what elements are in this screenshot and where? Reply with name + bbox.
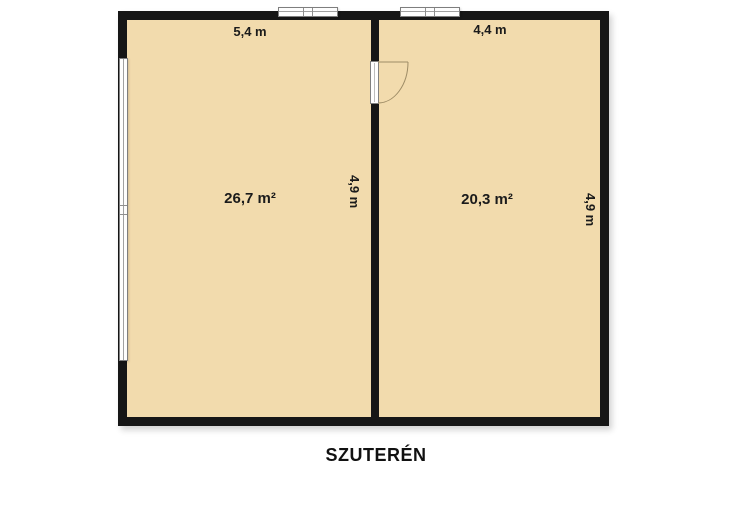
plan-title: SZUTERÉN — [256, 445, 496, 465]
divider-wall-lower-segment — [371, 103, 379, 418]
dimension-label-left-room-depth: 4,9 m — [348, 175, 361, 208]
divider-wall-upper-segment — [371, 20, 379, 62]
dimension-label-right-room-depth: 4,9 m — [584, 193, 597, 226]
window-icon-left-wall — [119, 58, 128, 361]
room-area-label-left: 26,7 m² — [185, 191, 315, 206]
window-center-tick — [303, 8, 313, 16]
dimension-label-right-room-width: 4,4 m — [440, 23, 540, 36]
window-icon-top-right — [400, 7, 460, 17]
door-swing-arc-icon — [378, 61, 410, 104]
floor-plan-outline — [118, 11, 609, 426]
window-center-tick — [425, 8, 435, 16]
room-area-label-right: 20,3 m² — [422, 192, 552, 207]
window-center-tick — [120, 205, 127, 215]
window-icon-top-left — [278, 7, 338, 17]
dimension-label-left-room-width: 5,4 m — [200, 25, 300, 38]
door-leaf-line — [374, 63, 375, 102]
floor-plan-canvas: 5,4 m 4,4 m 4,9 m 4,9 m 26,7 m² 20,3 m² … — [0, 0, 730, 516]
